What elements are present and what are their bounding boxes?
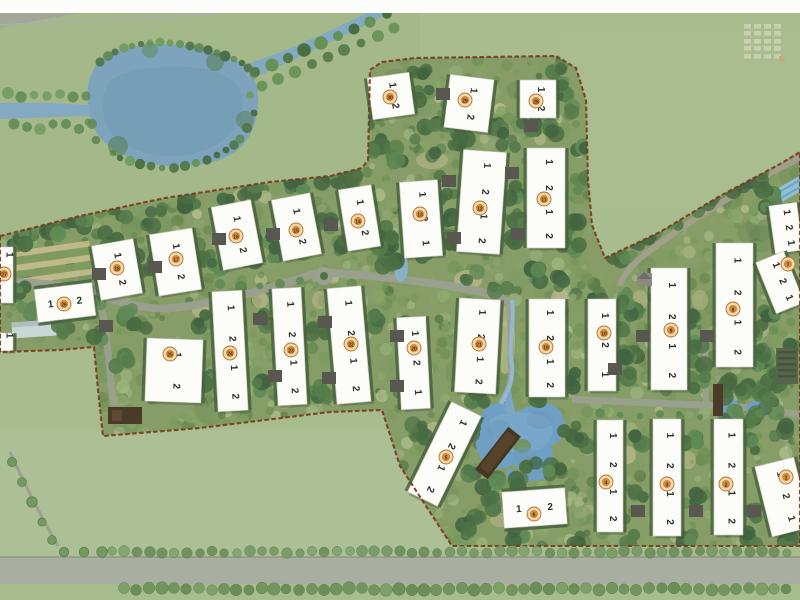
svg-text:2: 2	[607, 462, 618, 468]
svg-text:14: 14	[355, 219, 361, 225]
svg-text:2: 2	[732, 349, 743, 355]
svg-text:26: 26	[61, 302, 67, 308]
svg-text:13: 13	[417, 212, 423, 218]
svg-text:1: 1	[544, 359, 555, 365]
svg-text:1: 1	[599, 313, 610, 319]
svg-text:1: 1	[664, 491, 675, 497]
svg-text:15: 15	[293, 228, 299, 234]
svg-text:11: 11	[541, 197, 547, 203]
svg-text:1: 1	[4, 252, 15, 258]
svg-text:20: 20	[411, 346, 417, 352]
svg-text:9: 9	[670, 328, 673, 334]
svg-text:2: 2	[543, 185, 554, 191]
svg-text:16: 16	[233, 234, 239, 240]
svg-text:1: 1	[409, 330, 420, 337]
svg-text:1: 1	[732, 258, 743, 264]
svg-text:1: 1	[284, 301, 295, 308]
svg-text:2: 2	[599, 342, 610, 348]
svg-text:1: 1	[543, 209, 554, 215]
svg-text:1: 1	[535, 87, 546, 93]
svg-text:2: 2	[664, 463, 675, 469]
svg-text:2: 2	[666, 314, 677, 320]
svg-text:19: 19	[543, 345, 549, 351]
svg-text:2: 2	[289, 388, 300, 395]
svg-text:2: 2	[732, 290, 743, 296]
svg-text:30: 30	[387, 95, 393, 101]
svg-text:1: 1	[4, 333, 15, 339]
svg-text:1: 1	[666, 343, 677, 349]
svg-text:3: 3	[666, 482, 669, 488]
svg-text:8: 8	[732, 307, 735, 313]
svg-text:2: 2	[544, 382, 555, 388]
svg-text:17: 17	[173, 257, 179, 263]
svg-text:2: 2	[666, 373, 677, 379]
svg-text:1: 1	[225, 305, 236, 312]
svg-text:1: 1	[607, 433, 618, 439]
svg-text:2: 2	[410, 360, 421, 367]
svg-text:10: 10	[601, 331, 607, 337]
svg-text:5: 5	[445, 455, 448, 461]
svg-text:1: 1	[664, 433, 675, 439]
svg-text:1: 1	[726, 432, 737, 438]
svg-text:1: 1	[287, 360, 298, 367]
svg-text:23: 23	[288, 348, 294, 354]
svg-text:2: 2	[664, 519, 675, 525]
svg-text:22: 22	[348, 342, 354, 348]
svg-text:1: 1	[412, 389, 423, 396]
svg-text:6: 6	[533, 512, 536, 518]
svg-text:1: 1	[476, 309, 487, 316]
svg-text:1: 1	[474, 356, 485, 363]
svg-text:2: 2	[543, 233, 554, 239]
svg-text:1: 1	[732, 320, 743, 326]
svg-text:24: 24	[227, 351, 233, 357]
svg-text:28: 28	[533, 99, 539, 105]
svg-text:2: 2	[726, 463, 737, 469]
svg-text:2: 2	[472, 379, 483, 386]
svg-text:2: 2	[725, 482, 728, 488]
svg-text:2: 2	[607, 516, 618, 522]
svg-text:1: 1	[785, 475, 788, 481]
svg-text:12: 12	[477, 206, 483, 212]
svg-text:2: 2	[286, 332, 297, 339]
svg-text:1: 1	[228, 365, 239, 372]
svg-text:4: 4	[605, 480, 608, 486]
svg-text:21: 21	[476, 342, 482, 348]
svg-text:29: 29	[462, 98, 468, 104]
svg-text:25: 25	[167, 352, 173, 358]
svg-text:7: 7	[787, 262, 790, 268]
svg-text:2: 2	[726, 518, 737, 524]
svg-text:2: 2	[226, 336, 237, 343]
svg-text:2: 2	[229, 393, 240, 400]
svg-text:1: 1	[543, 159, 554, 165]
svg-text:1: 1	[607, 489, 618, 495]
svg-text:1: 1	[666, 282, 677, 288]
svg-text:27: 27	[1, 272, 7, 278]
svg-text:2: 2	[170, 383, 181, 389]
svg-text:1: 1	[544, 310, 555, 316]
svg-text:18: 18	[114, 266, 120, 272]
